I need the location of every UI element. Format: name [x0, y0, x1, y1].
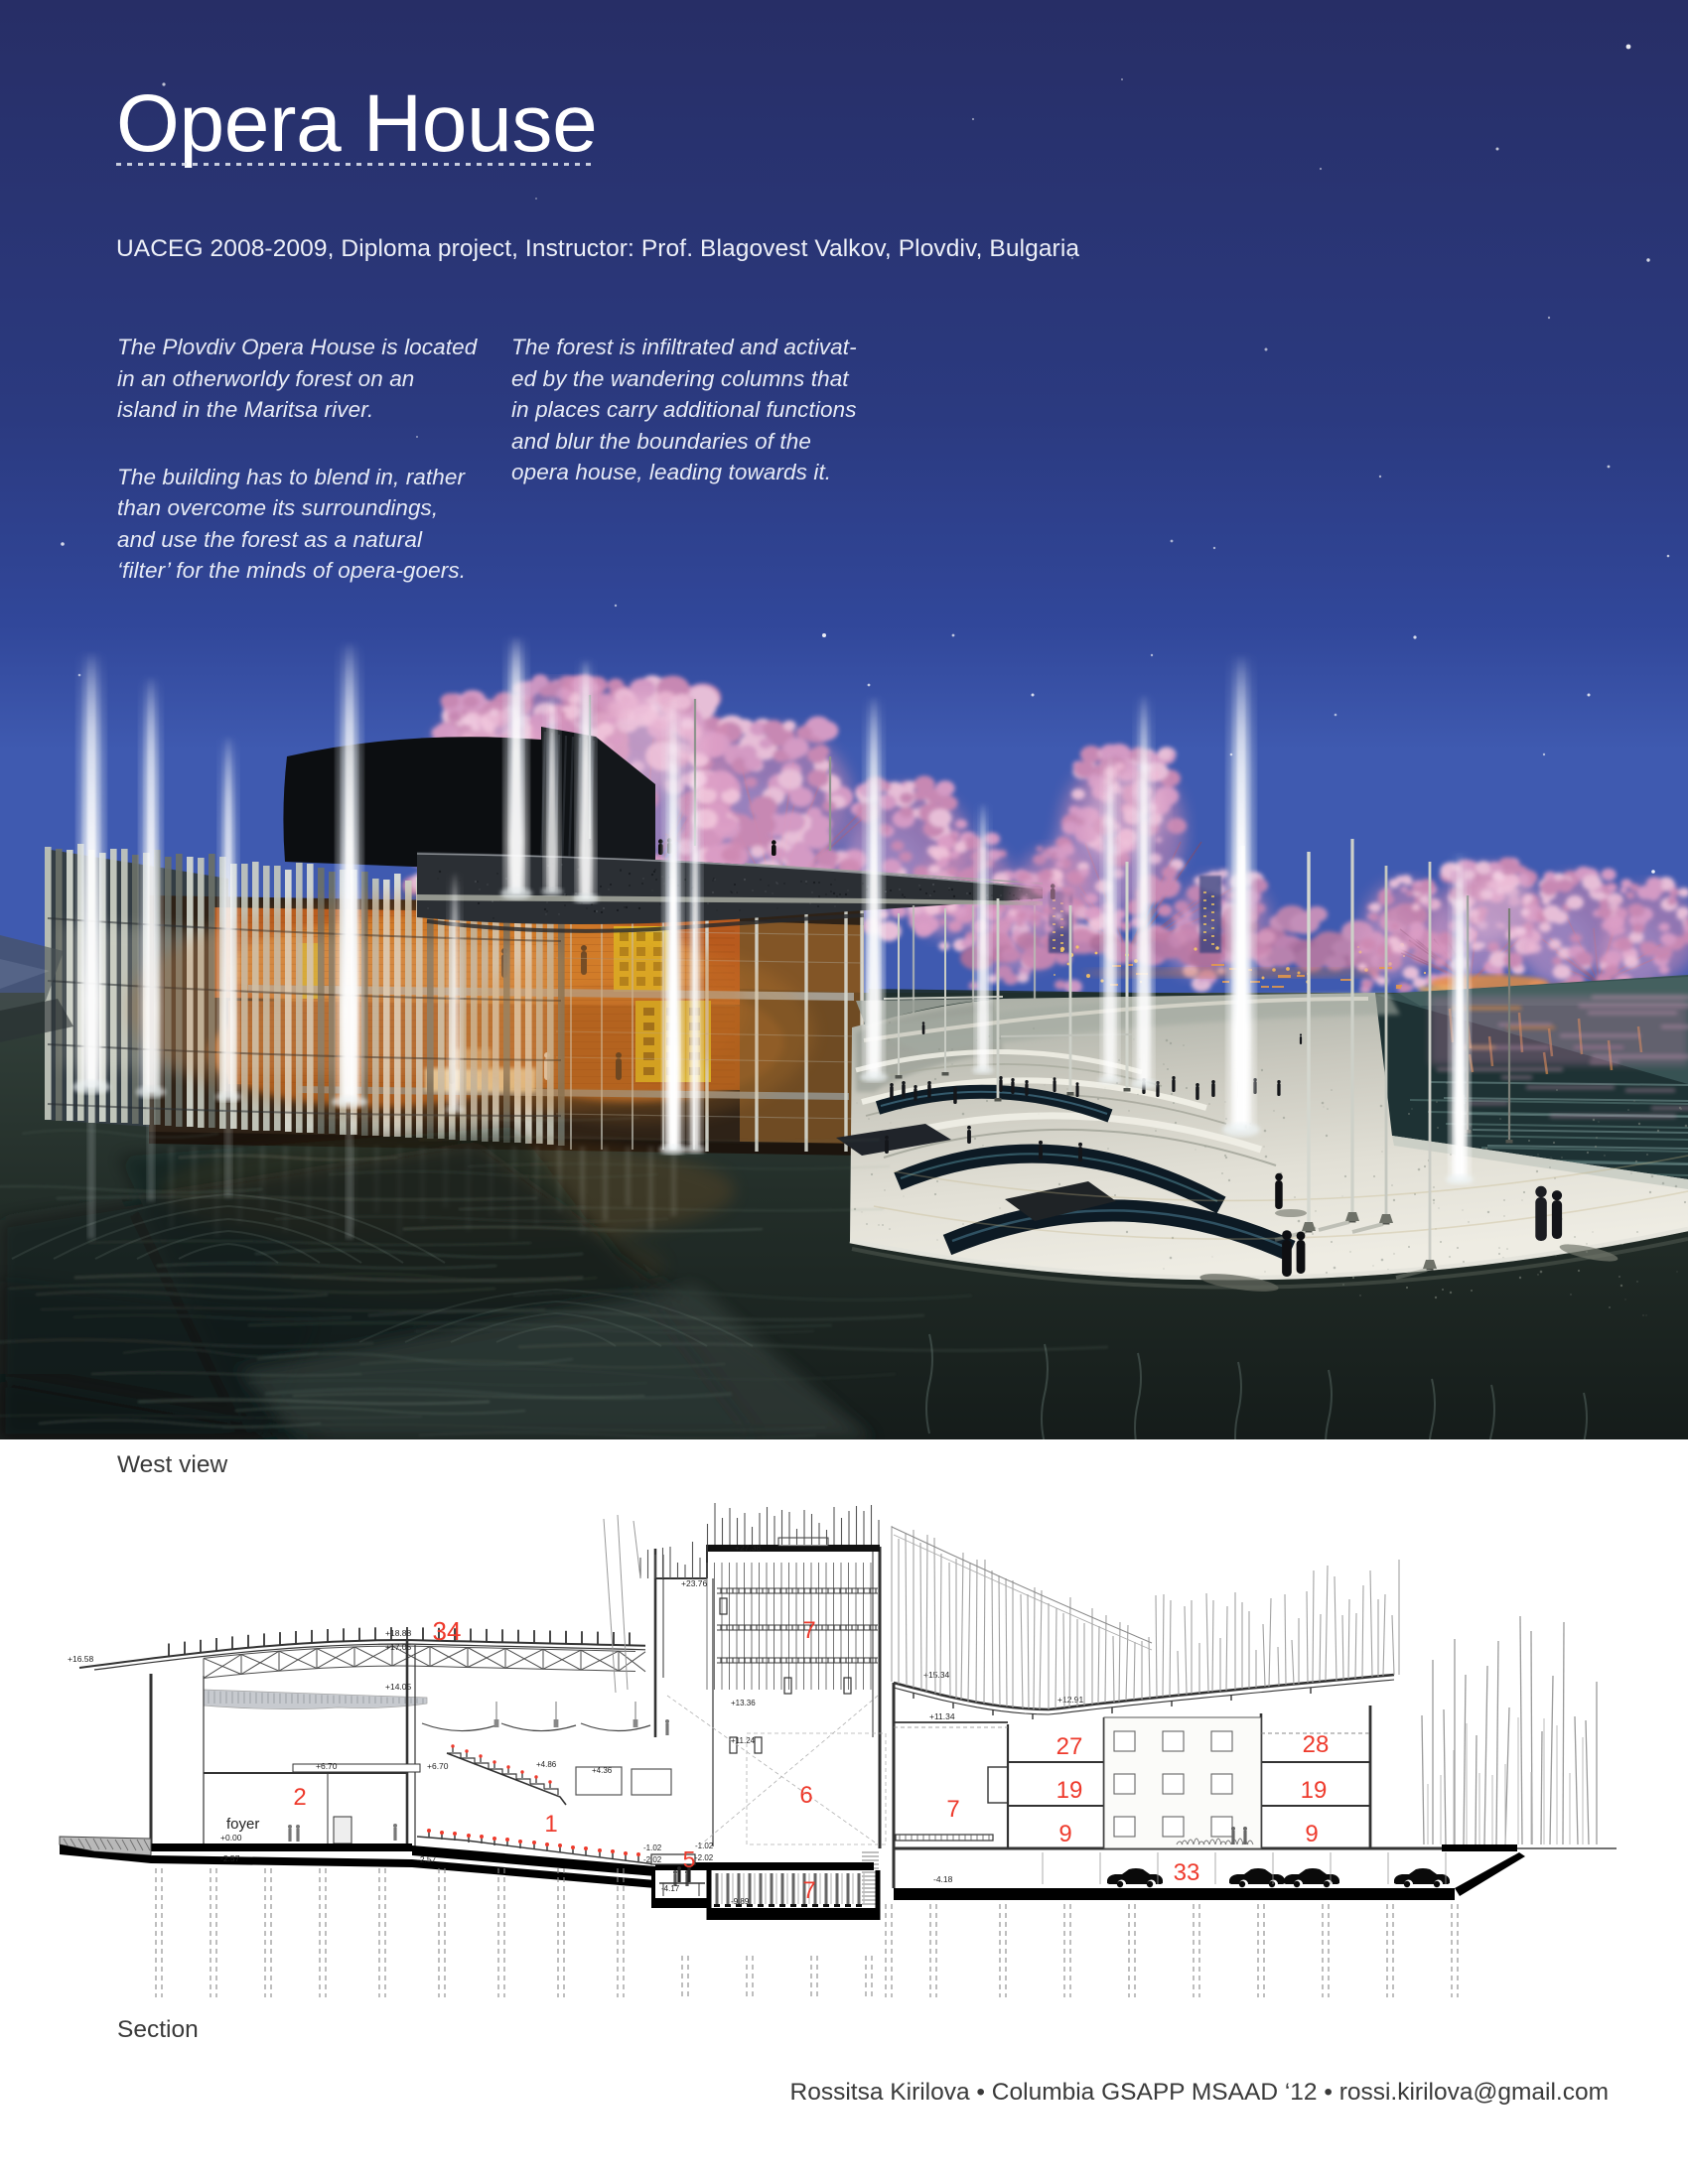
svg-text:+11.34: +11.34: [929, 1711, 955, 1721]
svg-text:1: 1: [544, 1811, 557, 1838]
svg-text:+15.34: +15.34: [923, 1670, 950, 1680]
svg-text:+16.58: +16.58: [68, 1654, 94, 1664]
svg-text:+27.38: +27.38: [735, 1543, 762, 1553]
svg-text:+11.24: +11.24: [731, 1736, 756, 1745]
svg-text:+6.70: +6.70: [316, 1761, 338, 1771]
svg-text:+0.00: +0.00: [220, 1833, 242, 1843]
svg-text:-4.18: -4.18: [933, 1874, 953, 1884]
svg-text:-9.89: -9.89: [731, 1897, 750, 1906]
svg-text:+23.76: +23.76: [681, 1578, 708, 1588]
svg-text:28: 28: [1303, 1731, 1330, 1758]
svg-text:+12.91: +12.91: [1057, 1695, 1084, 1705]
svg-text:+4.36: +4.36: [592, 1766, 613, 1775]
svg-text:19: 19: [1056, 1777, 1083, 1804]
svg-text:34: 34: [433, 1616, 462, 1646]
svg-text:foyer: foyer: [226, 1816, 259, 1833]
svg-text:7: 7: [802, 1877, 815, 1904]
svg-text:+17.05: +17.05: [385, 1642, 412, 1652]
svg-text:-4.17: -4.17: [661, 1884, 680, 1893]
svg-text:-1.02: -1.02: [643, 1843, 662, 1852]
svg-text:7: 7: [946, 1796, 959, 1823]
svg-text:6: 6: [799, 1782, 812, 1809]
svg-text:19: 19: [1301, 1777, 1328, 1804]
svg-text:+6.70: +6.70: [427, 1761, 449, 1771]
svg-text:33: 33: [1174, 1859, 1200, 1886]
svg-text:+4.86: +4.86: [536, 1760, 557, 1769]
svg-text:-1.02: -1.02: [695, 1842, 714, 1850]
svg-text:9: 9: [1058, 1821, 1071, 1847]
svg-text:+18.88: +18.88: [385, 1628, 412, 1638]
svg-text:-2.57: -2.57: [220, 1853, 240, 1863]
svg-text:5: 5: [683, 1846, 696, 1872]
svg-text:+13.36: +13.36: [731, 1699, 756, 1707]
svg-text:2: 2: [293, 1784, 306, 1811]
svg-text:-2.02: -2.02: [643, 1855, 662, 1864]
svg-text:+14.05: +14.05: [385, 1682, 412, 1692]
svg-text:7: 7: [802, 1617, 815, 1644]
svg-text:-2.02: -2.02: [695, 1853, 714, 1862]
svg-text:-2.57: -2.57: [417, 1854, 437, 1864]
svg-text:27: 27: [1056, 1733, 1083, 1760]
svg-text:9: 9: [1305, 1821, 1318, 1847]
